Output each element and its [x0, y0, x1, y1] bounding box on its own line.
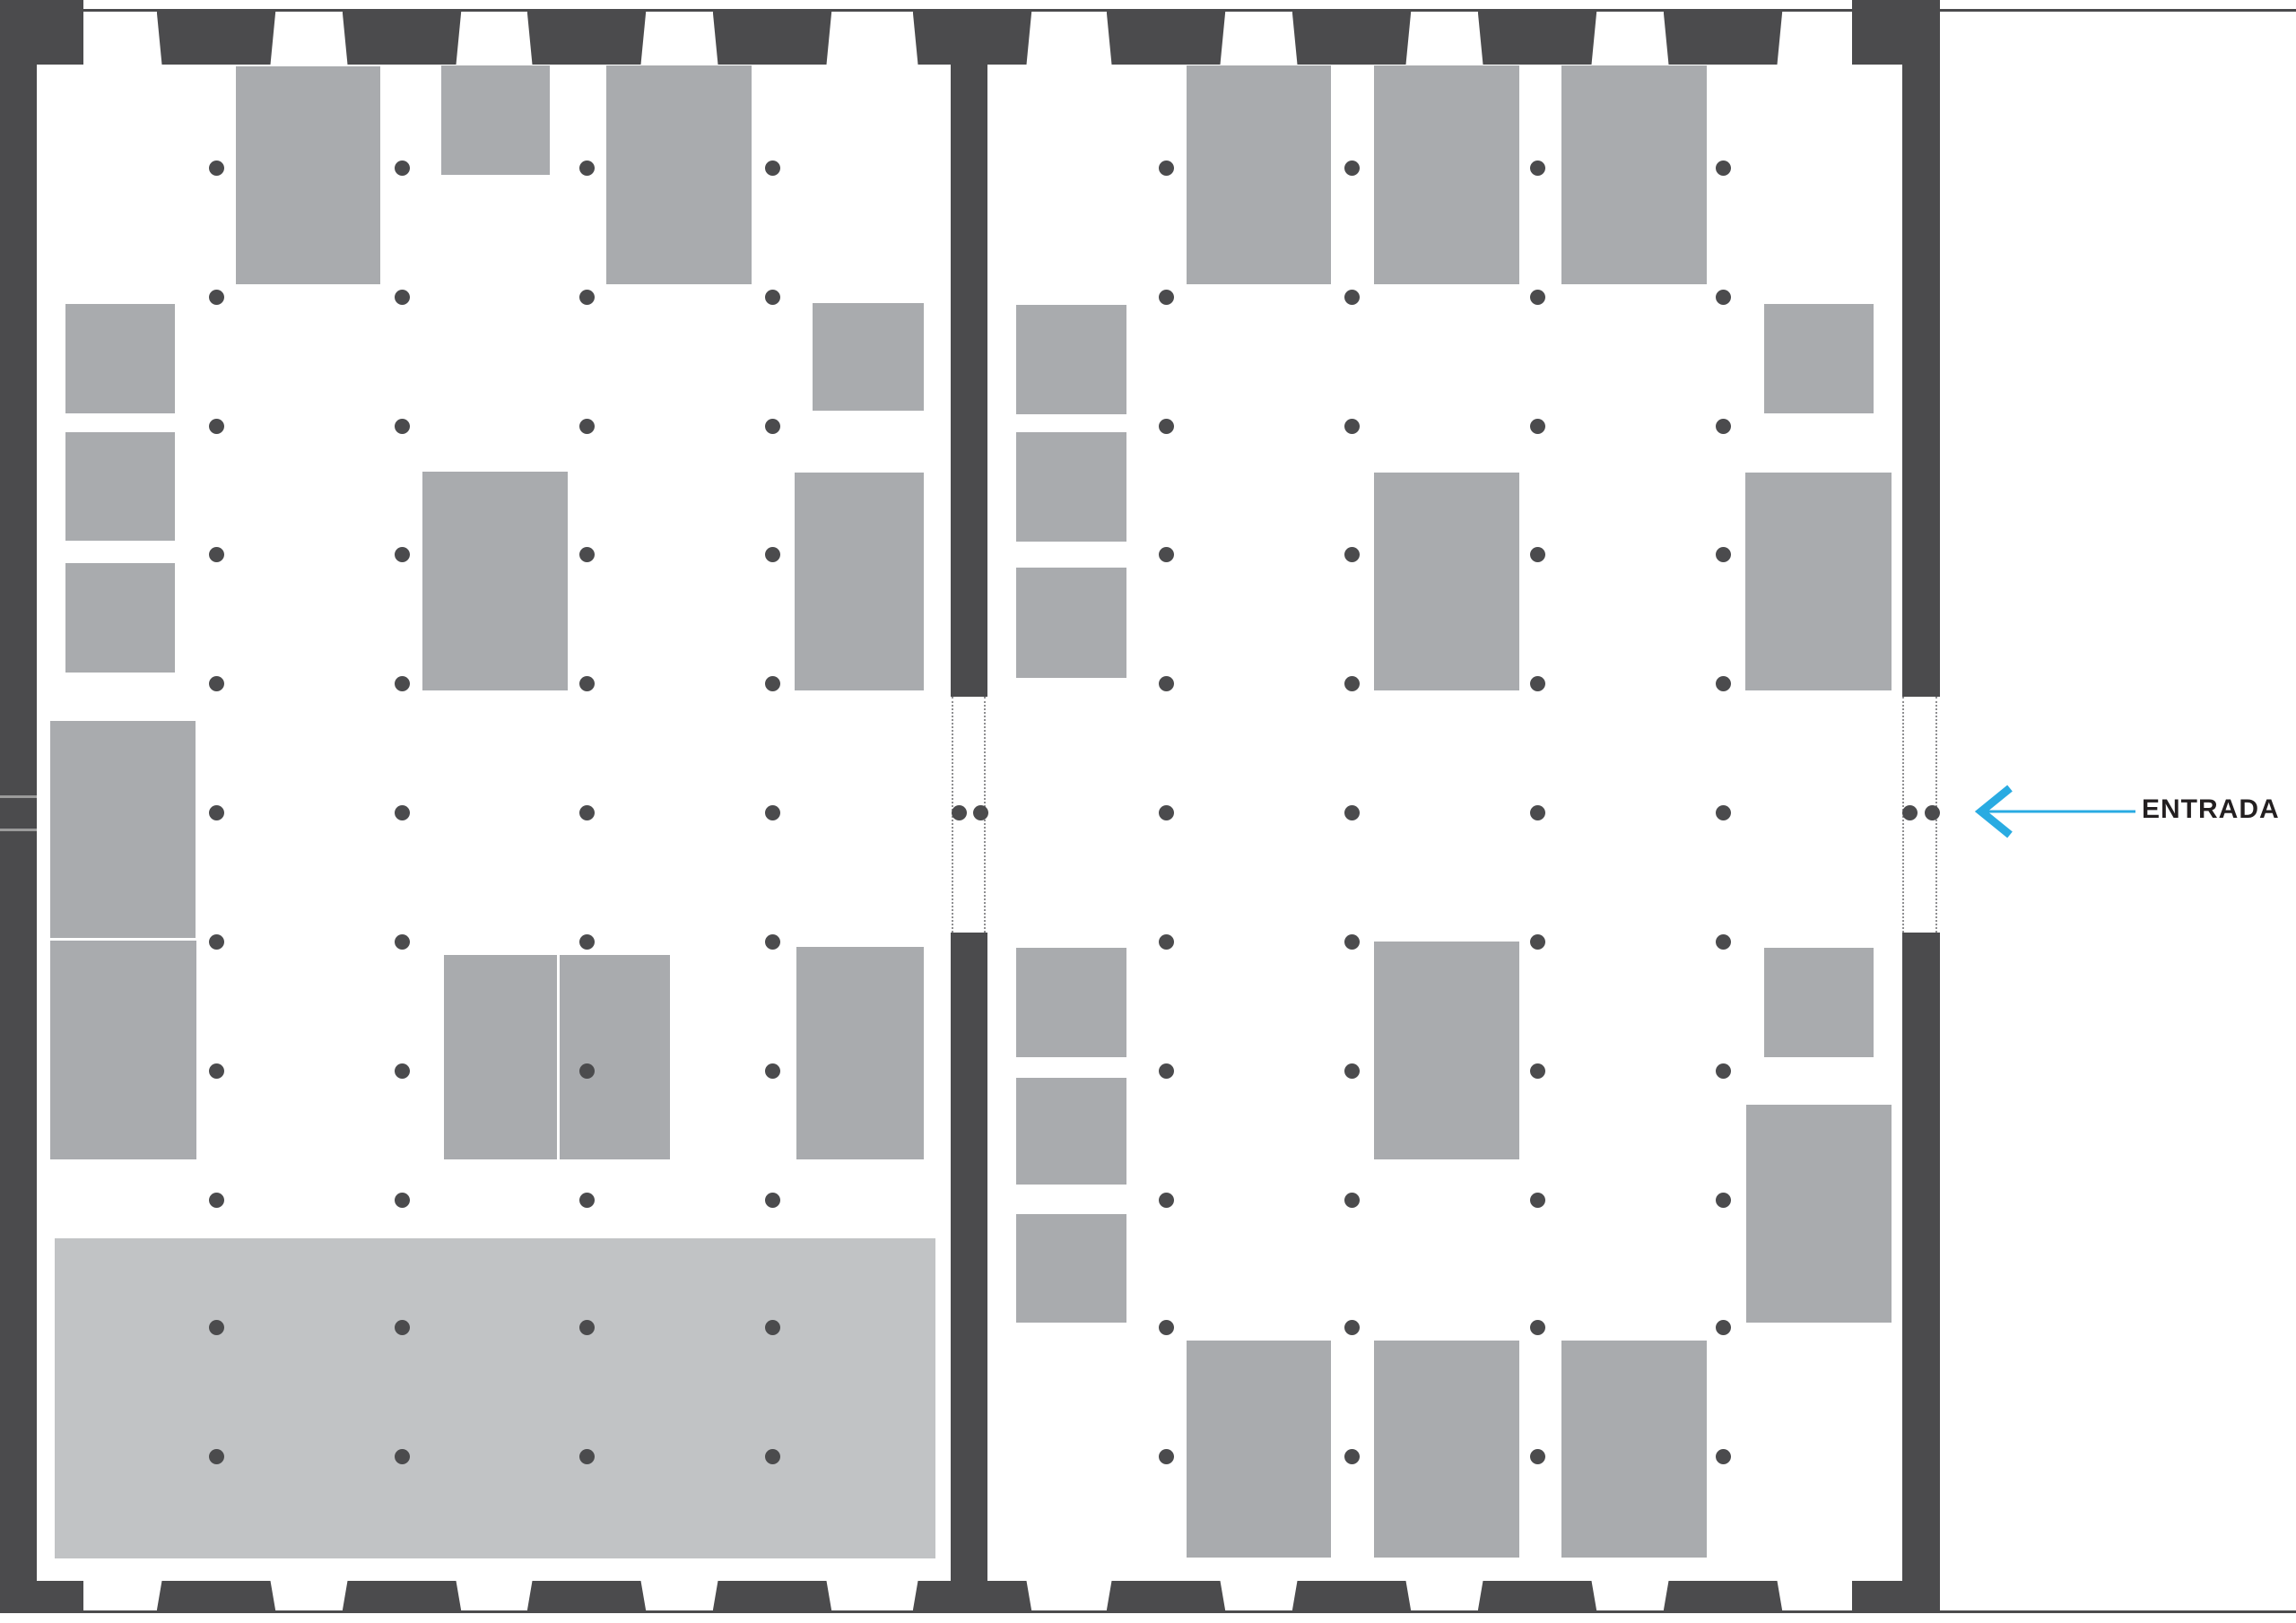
column-dot	[395, 547, 410, 562]
entrance-label: ENTRADA	[2142, 794, 2280, 825]
bottom-right-corner	[1852, 1581, 1940, 1612]
column-dot	[579, 161, 595, 176]
column-dot	[209, 1320, 224, 1335]
wall-pier-bottom	[1292, 1581, 1412, 1612]
column-dot	[973, 805, 988, 820]
column-dot	[1716, 419, 1731, 434]
column-dot	[1530, 419, 1545, 434]
stand	[444, 955, 557, 1159]
column-dot	[765, 1320, 780, 1335]
column-dot	[209, 547, 224, 562]
column-dot	[765, 805, 780, 820]
column-dot	[765, 419, 780, 434]
column-dot	[1530, 676, 1545, 691]
stand	[1561, 65, 1707, 284]
column-dot	[579, 290, 595, 305]
stand	[65, 563, 175, 673]
column-dot	[1530, 934, 1545, 950]
column-dot	[1159, 290, 1174, 305]
stand	[1016, 568, 1126, 678]
stand	[796, 947, 924, 1159]
column-dot	[579, 1320, 595, 1335]
column-dot	[1530, 547, 1545, 562]
column-dot	[765, 1193, 780, 1208]
column-dot	[1344, 1449, 1360, 1464]
column-dot	[395, 419, 410, 434]
column-dot	[1344, 805, 1360, 820]
column-dot	[1716, 1449, 1731, 1464]
column-dot	[1344, 419, 1360, 434]
column-dot	[1159, 419, 1174, 434]
column-dot	[579, 1063, 595, 1079]
wall-pier-top	[1292, 9, 1412, 65]
column-dot	[209, 161, 224, 176]
column-dot	[765, 547, 780, 562]
column-dot	[395, 290, 410, 305]
column-dot	[1344, 547, 1360, 562]
column-dot	[395, 161, 410, 176]
column-dot	[765, 1449, 780, 1464]
column-dot	[579, 805, 595, 820]
wall-pier-bottom	[343, 1581, 462, 1612]
column-dot	[209, 934, 224, 950]
column-dot	[209, 1449, 224, 1464]
column-dot	[1716, 1320, 1731, 1335]
stand	[606, 65, 752, 284]
column-dot	[395, 676, 410, 691]
stand	[813, 303, 924, 411]
stand	[1016, 1214, 1126, 1323]
column-dot	[579, 934, 595, 950]
stand	[65, 304, 175, 413]
wall-pier-bottom	[1107, 1581, 1226, 1612]
column-dot	[1159, 1193, 1174, 1208]
column-dot	[209, 1193, 224, 1208]
floor-plan: ENTRADA	[0, 0, 2296, 1623]
stand	[50, 941, 196, 1159]
stand	[1374, 1341, 1519, 1558]
stand	[50, 721, 196, 938]
column-dot	[395, 1449, 410, 1464]
wall-pier-top	[1478, 9, 1597, 65]
column-dot	[1716, 161, 1731, 176]
column-dot	[1159, 1320, 1174, 1335]
column-dot	[209, 290, 224, 305]
stand	[1561, 1341, 1707, 1558]
column-dot	[395, 1193, 410, 1208]
stand	[1745, 473, 1892, 690]
column-dot	[209, 419, 224, 434]
stand	[1374, 65, 1519, 284]
middle-wall-upper	[951, 12, 987, 697]
column-dot	[1344, 290, 1360, 305]
column-dot	[765, 290, 780, 305]
wall-pier-top	[913, 9, 1032, 65]
column-dot	[765, 1063, 780, 1079]
column-dot	[1716, 805, 1731, 820]
wall-pier-top	[1107, 9, 1226, 65]
column-dot	[1716, 1063, 1731, 1079]
column-dot	[1530, 1449, 1545, 1464]
column-dot	[579, 547, 595, 562]
column-dot	[395, 934, 410, 950]
wall-pier-bottom	[913, 1581, 1032, 1612]
column-dot	[1530, 1320, 1545, 1335]
column-dot	[765, 934, 780, 950]
column-dot	[1159, 934, 1174, 950]
wall-pier-top	[527, 9, 647, 65]
column-dot	[1344, 934, 1360, 950]
column-dot	[1716, 547, 1731, 562]
middle-wall-lower	[951, 933, 987, 1612]
column-dot	[1159, 547, 1174, 562]
wall-pier-bottom	[713, 1581, 832, 1612]
bottom-left-corner	[0, 1581, 83, 1612]
column-dot	[1344, 1063, 1360, 1079]
column-dot	[1530, 805, 1545, 820]
column-dot	[1530, 1193, 1545, 1208]
column-dot	[1716, 934, 1731, 950]
stand	[1374, 473, 1519, 690]
wall-pier-bottom	[157, 1581, 276, 1612]
stage-platform	[55, 1238, 935, 1558]
column-dot	[579, 676, 595, 691]
stand	[1374, 942, 1519, 1159]
left-wall	[0, 11, 37, 1612]
column-dot	[209, 676, 224, 691]
stand	[441, 65, 550, 175]
column-dot	[579, 1449, 595, 1464]
wall-pier-top	[1664, 9, 1783, 65]
stand	[1016, 948, 1126, 1057]
stand	[1016, 432, 1126, 542]
stand	[1746, 1105, 1892, 1323]
stand	[795, 473, 924, 690]
wall-pier-top	[343, 9, 462, 65]
column-dot	[1159, 161, 1174, 176]
right-wall-upper	[1902, 12, 1940, 697]
entrance-arrow-icon	[1969, 778, 2148, 845]
column-dot	[395, 1320, 410, 1335]
wall-pier-top	[713, 9, 832, 65]
stand	[422, 472, 568, 690]
wall-pier-bottom	[1478, 1581, 1597, 1612]
column-dot	[765, 676, 780, 691]
column-dot	[1344, 161, 1360, 176]
stand	[1016, 1078, 1126, 1185]
stand	[236, 66, 380, 284]
column-dot	[1159, 805, 1174, 820]
wall-pier-bottom	[527, 1581, 647, 1612]
column-dot	[395, 1063, 410, 1079]
column-dot	[1159, 1449, 1174, 1464]
stand	[1016, 305, 1126, 414]
column-dot	[1344, 1320, 1360, 1335]
stand	[65, 432, 175, 541]
column-dot	[1344, 1193, 1360, 1208]
column-dot	[1159, 676, 1174, 691]
column-dot	[1716, 676, 1731, 691]
stand	[560, 955, 670, 1159]
left-wall-door-mark	[0, 795, 37, 798]
column-dot	[209, 805, 224, 820]
column-dot	[395, 805, 410, 820]
column-dot	[1925, 805, 1940, 820]
column-dot	[1344, 676, 1360, 691]
column-dot	[1902, 805, 1918, 820]
wall-pier-top	[157, 9, 276, 65]
column-dot	[209, 1063, 224, 1079]
left-wall-door-mark	[0, 829, 37, 831]
column-dot	[1716, 1193, 1731, 1208]
stand	[1764, 304, 1874, 413]
column-dot	[952, 805, 967, 820]
stand	[1187, 1341, 1331, 1558]
wall-pier-bottom	[1664, 1581, 1783, 1612]
column-dot	[579, 419, 595, 434]
right-wall-lower	[1902, 933, 1940, 1612]
column-dot	[1530, 1063, 1545, 1079]
column-dot	[1159, 1063, 1174, 1079]
column-dot	[1530, 290, 1545, 305]
stand	[1764, 948, 1874, 1057]
column-dot	[1716, 290, 1731, 305]
stand	[1187, 65, 1331, 284]
column-dot	[1530, 161, 1545, 176]
column-dot	[765, 161, 780, 176]
column-dot	[579, 1193, 595, 1208]
